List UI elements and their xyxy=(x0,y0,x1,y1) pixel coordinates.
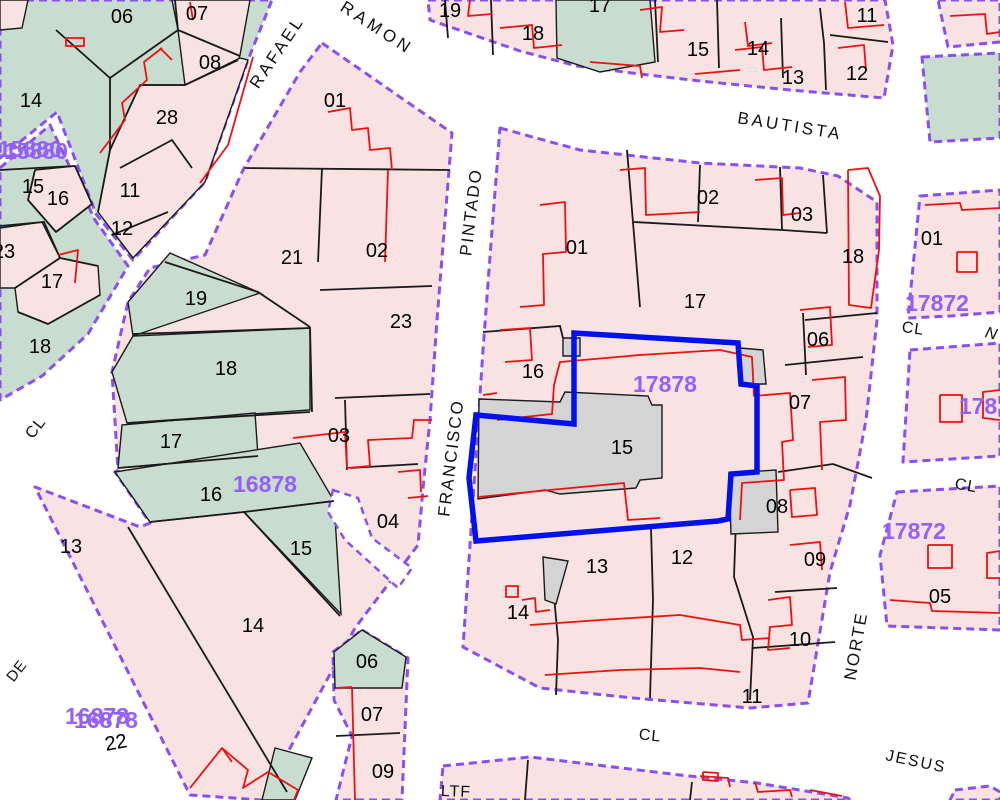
parcel-label-06-42: 06 xyxy=(807,329,829,351)
parcel-label-13-34: 13 xyxy=(782,67,804,89)
parcel-label-09-47: 09 xyxy=(804,549,826,571)
cadastral-map-svg[interactable]: 0607081428111215162317180121022319181716… xyxy=(0,0,1000,800)
parcel-label-01-53: 01 xyxy=(921,228,943,250)
parcel-label-12-48: 12 xyxy=(671,547,693,569)
parcel-label-06-0: 06 xyxy=(111,6,133,28)
parcel-label-08-46: 08 xyxy=(766,496,788,518)
block-label-16878-4: 16878 xyxy=(74,707,138,733)
parcel-label-13-49: 13 xyxy=(586,556,608,578)
parcel-label-04-21: 04 xyxy=(377,511,399,533)
parcel-label-15-32: 15 xyxy=(687,39,709,61)
parcel-label-02-38: 02 xyxy=(697,187,719,209)
parcel-label-14-24: 14 xyxy=(242,615,264,637)
block-label-17872-7: 17872 xyxy=(882,518,946,544)
parcel-label-23-15: 23 xyxy=(390,311,412,333)
building-bld-15 xyxy=(478,392,662,499)
building-outline-27 xyxy=(336,687,352,688)
parcel-label-15-45: 15 xyxy=(611,437,633,459)
parcel-label-17-10: 17 xyxy=(41,271,63,293)
parcel-label-10-51: 10 xyxy=(789,629,811,651)
parcel-label-22-25: 22 xyxy=(103,730,129,756)
parcel-label-18-30: 18 xyxy=(522,23,544,45)
street-label-cl-10: CL xyxy=(901,319,926,339)
parcel-label-06-26: 06 xyxy=(356,651,378,673)
parcel-label-13-23: 13 xyxy=(60,536,82,558)
parcel-label-05-54: 05 xyxy=(929,586,951,608)
parcel-label-19-29: 19 xyxy=(439,0,461,22)
parcel-label-07-43: 07 xyxy=(789,392,811,414)
green-parcel-mega-18[interactable] xyxy=(112,328,310,423)
parcel-label-15-7: 15 xyxy=(22,176,44,198)
block-label-17878-5: 17878 xyxy=(633,371,697,397)
parcel-label-08-2: 08 xyxy=(199,52,221,74)
parcel-label-18-40: 18 xyxy=(842,246,864,268)
parcel-label-18-11: 18 xyxy=(29,336,51,358)
parcel-label-01-37: 01 xyxy=(566,237,588,259)
block-right-3[interactable] xyxy=(880,486,1000,630)
cadastral-map[interactable]: 0607081428111215162317180121022319181716… xyxy=(0,0,1000,800)
parcel-label-12-35: 12 xyxy=(846,63,868,85)
parcel-label-07-1: 07 xyxy=(186,3,208,25)
block-top-right-1[interactable] xyxy=(938,0,1000,47)
parcel-label-01-12: 01 xyxy=(324,90,346,112)
parcel-label-17-41: 17 xyxy=(684,291,706,313)
parcel-label-14-50: 14 xyxy=(507,602,529,624)
street-label-ltf-12: LTF xyxy=(441,783,472,800)
parcel-label-16-19: 16 xyxy=(200,484,222,506)
parcel-label-02-14: 02 xyxy=(366,240,388,262)
block-label-17872-6: 17872 xyxy=(905,290,969,316)
parcel-label-11-5: 11 xyxy=(120,180,141,202)
parcel-label-09-28: 09 xyxy=(372,761,394,783)
parcel-label-03-20: 03 xyxy=(328,425,350,447)
block-label-15880-1: 15880 xyxy=(4,138,68,164)
block-top-right-green[interactable] xyxy=(922,53,1000,142)
parcel-label-11-36: 11 xyxy=(857,5,878,27)
parcel-label-17-31: 17 xyxy=(589,0,611,17)
parcel-label-21-13: 21 xyxy=(281,247,303,269)
parcel-label-12-6: 12 xyxy=(111,218,133,240)
parcel-label-16-44: 16 xyxy=(522,361,544,383)
block-label-178-8: 178 xyxy=(959,393,998,419)
parcel-label-15-22: 15 xyxy=(290,538,312,560)
parcel-label-19-16: 19 xyxy=(185,288,207,310)
block-label-16878-2: 16878 xyxy=(233,471,297,497)
parcel-label-16-8: 16 xyxy=(47,188,69,210)
parcel-label-17-18: 17 xyxy=(160,431,182,453)
parcel-label-14-3: 14 xyxy=(20,90,42,112)
parcel-label-07-27: 07 xyxy=(361,704,383,726)
parcel-label-14-33: 14 xyxy=(747,38,769,60)
parcel-label-23-9: 23 xyxy=(0,241,15,263)
parcel-label-03-39: 03 xyxy=(791,204,813,226)
street-label-cl-9: CL xyxy=(638,726,662,745)
parcel-label-11-52: 11 xyxy=(742,686,763,708)
parcel-label-28-4: 28 xyxy=(156,107,178,129)
parcel-label-18-17: 18 xyxy=(215,358,237,380)
